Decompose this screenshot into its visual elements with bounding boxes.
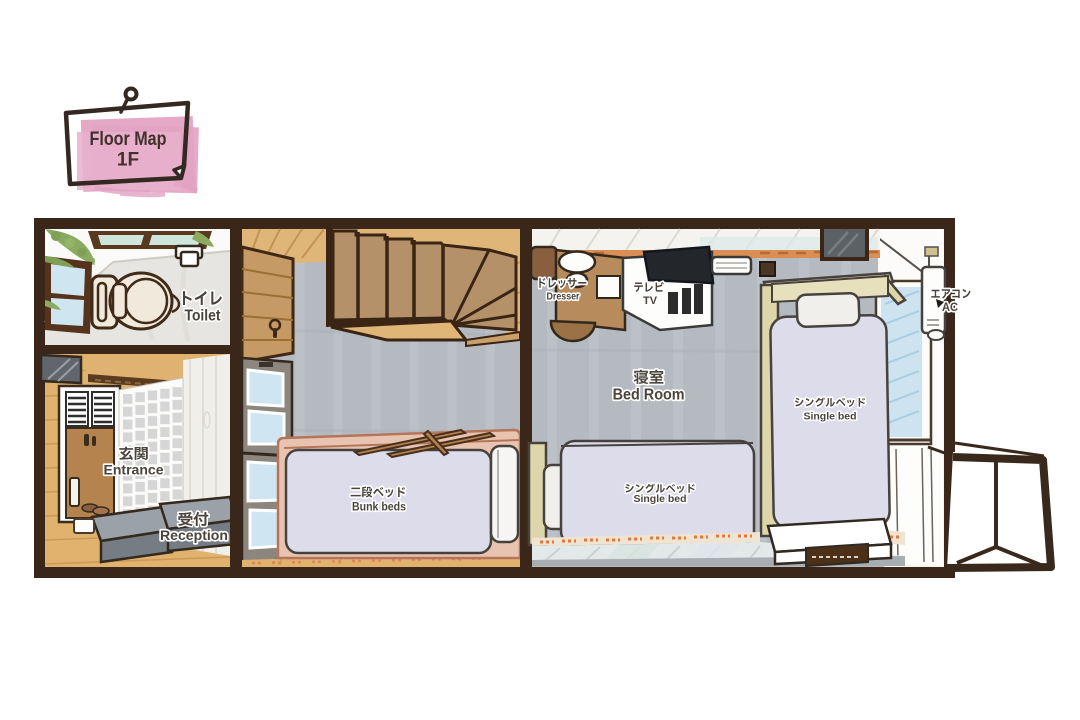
svg-text:Single bed: Single bed — [634, 493, 687, 505]
svg-text:Bunk beds: Bunk beds — [352, 502, 406, 514]
svg-text:Reception: Reception — [160, 528, 228, 543]
svg-text:AC: AC — [942, 300, 958, 314]
svg-text:Single bed: Single bed — [804, 411, 857, 423]
svg-text:Entrance: Entrance — [104, 463, 164, 478]
svg-text:TV: TV — [643, 295, 658, 307]
svg-text:Dresser: Dresser — [547, 292, 580, 303]
svg-text:Toilet: Toilet — [185, 308, 222, 325]
svg-text:Floor Map: Floor Map — [90, 129, 167, 150]
svg-text:Bed Room: Bed Room — [613, 387, 685, 404]
svg-text:1F: 1F — [117, 150, 139, 171]
